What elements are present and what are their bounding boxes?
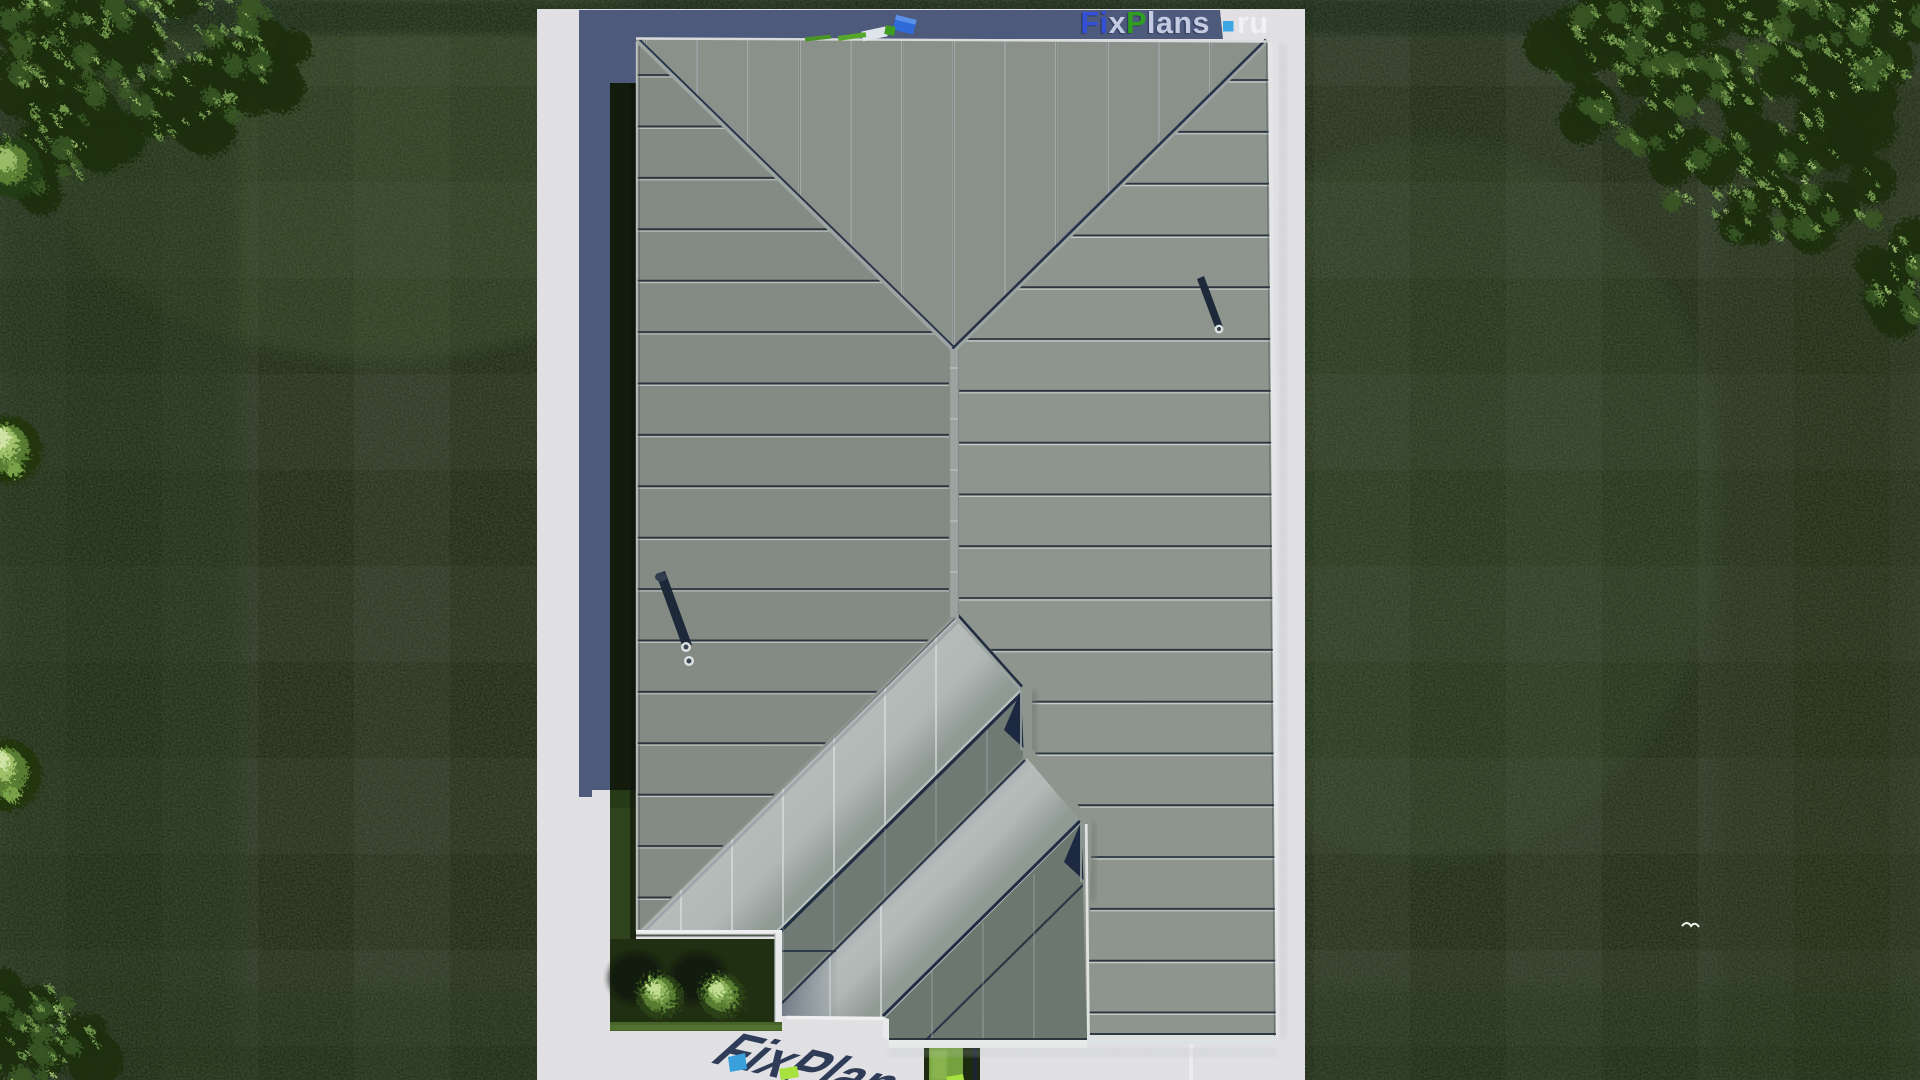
svg-text:ru: ru <box>1237 6 1269 40</box>
svg-text:FixPlans: FixPlans <box>1081 6 1210 40</box>
